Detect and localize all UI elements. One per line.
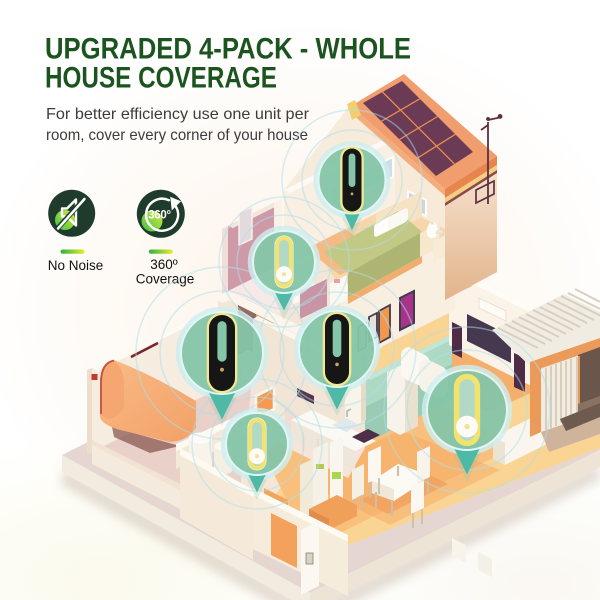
svg-text:No Noise: No Noise xyxy=(48,258,104,273)
svg-text:360º: 360º xyxy=(150,257,178,272)
svg-text:room, cover every corner of yo: room, cover every corner of your house xyxy=(46,127,308,144)
svg-text:360°: 360° xyxy=(148,210,171,222)
svg-text:Coverage: Coverage xyxy=(136,272,195,287)
svg-text:HOUSE COVERAGE: HOUSE COVERAGE xyxy=(45,62,277,95)
svg-text:For better efficiency use one: For better efficiency use one unit per xyxy=(46,106,310,123)
